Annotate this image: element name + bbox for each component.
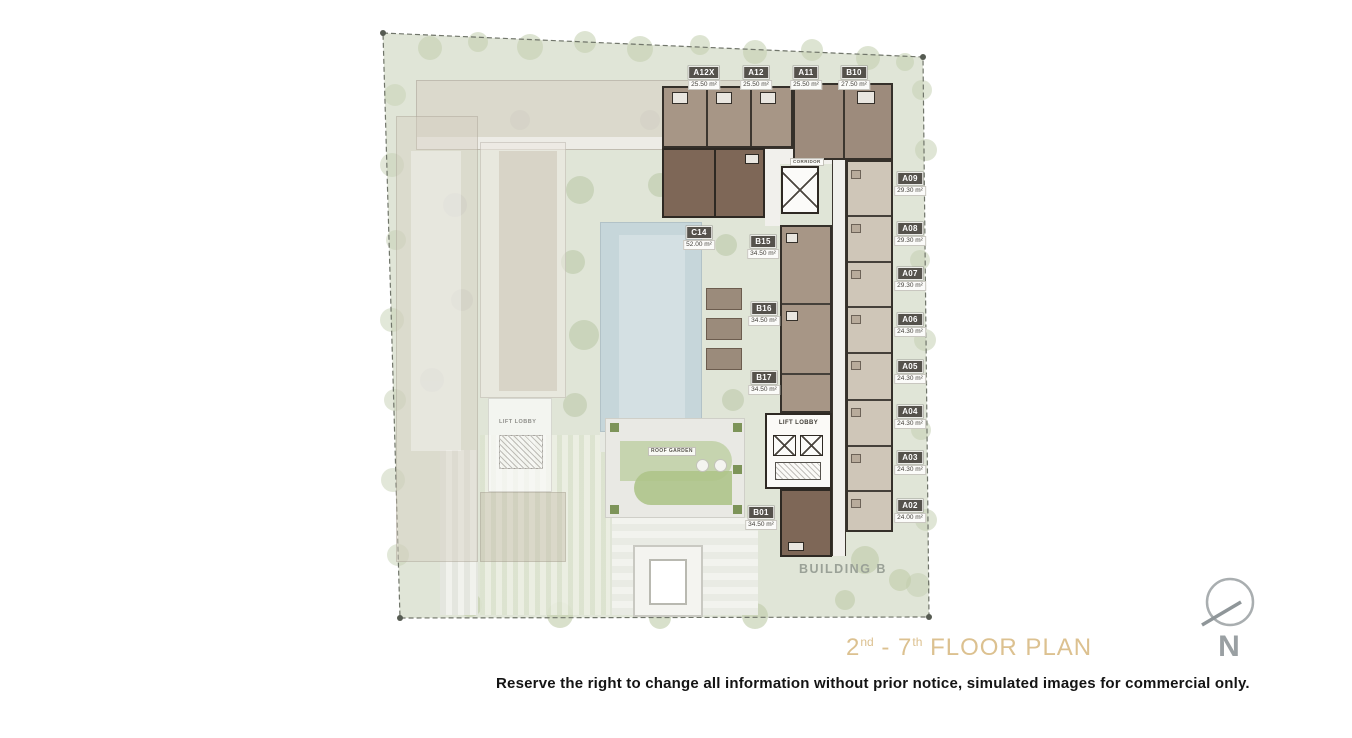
unit-wall (848, 261, 891, 263)
building-b-top-wing (662, 86, 793, 148)
unit-bathroom (788, 542, 804, 551)
unit-bathroom (851, 224, 861, 233)
corridor-stair-side (765, 164, 780, 226)
lift-lobby-left-label: LIFT LOBBY (499, 419, 536, 425)
building-a-lift-shafts (499, 435, 543, 469)
elevator-shaft (773, 435, 796, 456)
unit-wall (843, 85, 845, 158)
garden-lawn-lower (634, 471, 732, 505)
floor-plan-page: ROOF GARDEN LIFT LOBBY CORRIDOR (0, 0, 1352, 738)
unit-wall (848, 399, 891, 401)
unit-bathroom (851, 499, 861, 508)
floor-plan-title: 2nd - 7th FLOOR PLAN (846, 634, 1092, 662)
lift-lobby: LIFT LOBBY (765, 413, 832, 489)
title-superscript: nd (860, 635, 873, 649)
pool-inner (619, 235, 685, 421)
north-label: N (1218, 630, 1240, 663)
building-a-mid-wing (480, 142, 566, 398)
building-b-a-column (846, 160, 893, 532)
building-a-mid-units (499, 151, 557, 391)
elevator-shaft (800, 435, 823, 456)
title-part: FLOOR PLAN (922, 634, 1092, 661)
unit-bathroom (851, 315, 861, 324)
lift-lobby-label: LIFT LOBBY (767, 420, 830, 426)
service-room (775, 462, 821, 480)
swimming-pool (600, 222, 702, 432)
unit-wall (782, 373, 830, 375)
unit-bathroom (745, 154, 759, 164)
corridor-label: CORRIDOR (790, 158, 824, 166)
unit-bathroom (786, 311, 798, 321)
unit-bathroom (851, 454, 861, 463)
title-part: - 7 (874, 634, 913, 661)
unit-wall (848, 445, 891, 447)
building-a-left-inner (411, 151, 461, 451)
disclaimer-text: Reserve the right to change all informat… (496, 675, 1250, 692)
north-compass: N (1192, 568, 1268, 664)
unit-wall (848, 352, 891, 354)
planter (733, 423, 742, 432)
building-a-bottom-block (480, 492, 566, 562)
building-a-left-wing (396, 116, 478, 562)
unit-wall (750, 88, 752, 146)
garden-table (714, 459, 727, 472)
pool-cabana (706, 318, 742, 340)
planter (610, 423, 619, 432)
unit-bathroom (851, 270, 861, 279)
title-superscript: th (912, 635, 922, 649)
unit-wall (706, 88, 708, 146)
unit-wall (848, 490, 891, 492)
building-b-b01-unit (780, 489, 832, 557)
building-b-b-column (780, 225, 832, 413)
pool-cabana (706, 348, 742, 370)
unit-wall (782, 303, 830, 305)
roof-garden (605, 418, 745, 518)
entrance-portal (633, 545, 703, 617)
building-b-label: BUILDING B (799, 562, 887, 576)
unit-bathroom (851, 170, 861, 179)
roof-garden-label: ROOF GARDEN (648, 447, 696, 456)
building-a-lift-lobby: LIFT LOBBY (488, 398, 552, 492)
planter (733, 505, 742, 514)
garden-table (696, 459, 709, 472)
title-part: 2 (846, 634, 860, 661)
planter (610, 505, 619, 514)
corridor-vertical (832, 148, 846, 556)
unit-bathroom (851, 408, 861, 417)
planter (733, 465, 742, 474)
building-b-b10-block (793, 83, 893, 160)
unit-wall (714, 150, 716, 216)
unit-bathroom (760, 92, 776, 104)
unit-bathroom (851, 361, 861, 370)
entrance-canopy (649, 559, 687, 605)
stairwell (781, 166, 819, 214)
pool-cabana (706, 288, 742, 310)
unit-wall (848, 306, 891, 308)
building-b-dark-unit (662, 148, 765, 218)
unit-bathroom (786, 233, 798, 243)
unit-bathroom (716, 92, 732, 104)
unit-bathroom (857, 91, 875, 104)
unit-bathroom (672, 92, 688, 104)
unit-wall (848, 215, 891, 217)
